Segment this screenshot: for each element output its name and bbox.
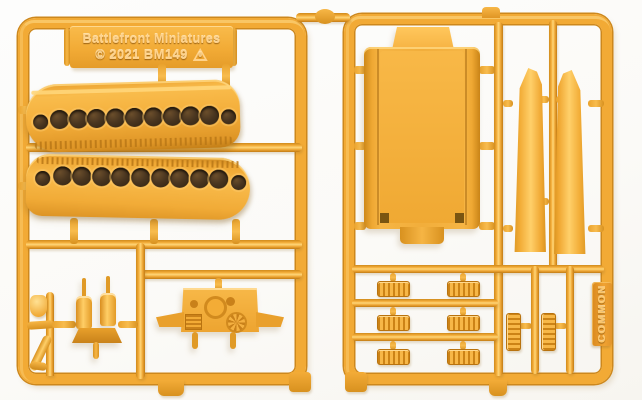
track-wheel-hole xyxy=(35,171,50,186)
sprue-top-nub xyxy=(482,7,500,18)
runner-vertical-right-a xyxy=(531,266,539,374)
small-knob-part xyxy=(30,295,47,317)
common-tab: COMMON xyxy=(592,282,612,346)
rear-plate-hatch-circle xyxy=(204,296,227,319)
sprue-gate xyxy=(479,142,495,150)
exhaust-assembly-part xyxy=(70,276,140,362)
track-wheel-hole xyxy=(50,110,70,130)
track-wheel-hole xyxy=(68,109,88,129)
track-wheel-hole xyxy=(53,166,72,185)
ribbed-detail-part xyxy=(447,281,480,297)
sprue-gate xyxy=(70,218,78,244)
sprue-gate xyxy=(479,66,495,74)
runner-right-row-2 xyxy=(352,299,498,307)
track-wheel-hole xyxy=(111,167,130,186)
runner-vertical-mid-right xyxy=(494,22,503,376)
hull-bottom-tab xyxy=(400,227,444,244)
track-upper-holes xyxy=(25,79,241,153)
runner-right-row-3 xyxy=(352,333,498,341)
hull-piece xyxy=(364,27,480,247)
sprue-gate xyxy=(479,222,495,230)
label-brand-text: Battlefront Miniatures xyxy=(83,32,221,46)
track-wheel-hole xyxy=(170,169,189,188)
hull-rail-groove xyxy=(465,49,467,225)
track-lower-holes xyxy=(25,154,250,221)
exhaust-cylinder xyxy=(76,296,92,329)
ribbed-detail-part-vertical xyxy=(541,313,556,351)
runner-below-tracks xyxy=(26,240,302,249)
exhaust-bracket xyxy=(72,328,122,343)
runner-vertical-corner xyxy=(46,292,54,376)
track-wheel-hole xyxy=(231,175,246,190)
sprue-gate xyxy=(503,100,513,107)
ribbed-detail-part xyxy=(447,315,480,331)
track-wheel-hole xyxy=(162,107,182,127)
track-wheel-hole xyxy=(200,106,220,126)
sprue-foot-tab xyxy=(158,380,184,396)
label-code-text: © 2021 BM149 6 xyxy=(95,47,207,62)
label-copyright-text: © 2021 BM149 xyxy=(95,47,187,62)
exhaust-stem xyxy=(93,342,99,359)
track-wheel-hole xyxy=(33,114,48,129)
ribbed-detail-part-vertical xyxy=(506,313,521,351)
track-piece-lower xyxy=(25,154,250,221)
track-wheel-hole xyxy=(72,167,91,186)
sprue-gate xyxy=(232,219,240,244)
recycle-number: 6 xyxy=(193,52,208,59)
track-wheel-hole xyxy=(125,108,145,128)
hull-notch xyxy=(380,213,389,223)
sprue-foot-tab xyxy=(345,372,367,392)
sprue-gate xyxy=(588,225,604,232)
hull-inner-face xyxy=(380,51,464,223)
exhaust-cylinder xyxy=(100,293,116,326)
sprue-foot-tab xyxy=(289,372,311,392)
track-wheel-hole xyxy=(151,168,170,187)
track-wheel-hole xyxy=(106,108,126,128)
track-wheel-hole xyxy=(190,169,209,188)
rear-plate-pin xyxy=(192,332,198,349)
rear-plate-pin xyxy=(230,332,236,349)
recycle-icon: 6 xyxy=(193,48,208,61)
track-wheel-hole xyxy=(221,109,236,124)
sprue-photo: Battlefront Miniatures © 2021 BM149 6 xyxy=(0,0,642,400)
hull-notch xyxy=(455,213,464,223)
sprue-gate xyxy=(150,219,158,244)
rear-plate-piece xyxy=(168,288,272,358)
rear-plate-detail-circle xyxy=(190,300,198,308)
ribbed-detail-part xyxy=(377,315,410,331)
rear-plate-grille xyxy=(185,314,202,330)
track-wheel-hole xyxy=(87,109,107,129)
track-wheel-hole xyxy=(181,106,201,126)
rear-plate-detail-circle xyxy=(226,297,235,306)
ribbed-detail-part xyxy=(377,349,410,365)
ribbed-detail-part xyxy=(447,349,480,365)
track-wheel-hole xyxy=(92,167,111,186)
common-tab-text: COMMON xyxy=(596,285,608,343)
sprue-connector-knob xyxy=(315,9,335,24)
track-wheel-hole xyxy=(131,168,150,187)
exhaust-pin xyxy=(82,278,86,298)
label-plate: Battlefront Miniatures © 2021 BM149 6 xyxy=(70,26,233,68)
sprue-foot-tab xyxy=(489,380,507,396)
rear-plate-fan xyxy=(226,312,247,333)
hull-rail-groove xyxy=(377,49,379,225)
track-wheel-hole xyxy=(144,107,164,127)
sprue-gate xyxy=(503,225,513,232)
track-wheel-hole xyxy=(209,169,228,188)
runner-vertical-right-b xyxy=(566,266,574,374)
sprue-gate xyxy=(588,100,604,107)
ribbed-detail-part xyxy=(377,281,410,297)
track-piece-upper xyxy=(25,79,241,153)
